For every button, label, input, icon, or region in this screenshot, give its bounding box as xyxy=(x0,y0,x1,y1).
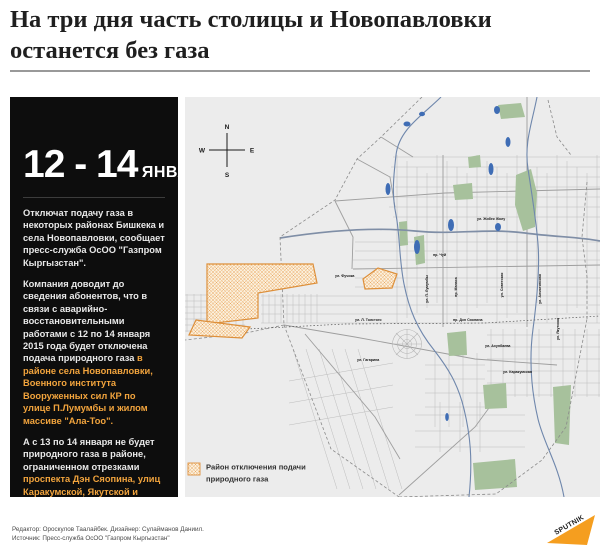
page-title-line1: На три дня часть столицы и Новопавловки xyxy=(10,5,592,36)
info-panel: 12 - 14 ЯНВАРЯ Отключат подачу газа в не… xyxy=(10,97,178,497)
paragraph-3-plain: А с 13 по 14 января не будет природного … xyxy=(23,437,155,472)
infographic-page: На три дня часть столицы и Новопавловки … xyxy=(0,0,600,553)
street-label: пр. Чуй xyxy=(433,253,446,257)
paragraph-3-highlight: проспекта Дэн Сяопина, улиц Каракумской,… xyxy=(23,474,160,497)
street-label: ул. Советская xyxy=(500,273,504,298)
date-range-month: ЯНВАРЯ xyxy=(142,164,178,181)
credits-line2: Источник: Пресс-служба ОсОО "Газпром Кыр… xyxy=(12,535,204,544)
date-divider xyxy=(23,197,165,198)
credits-line1: Редактор: Ороскулов Таалайбек. Дизайнер:… xyxy=(12,526,204,535)
street-label: ул. Ахунбаева xyxy=(485,344,511,348)
street-label: ул. Якутская xyxy=(556,318,560,340)
city-map-svg: пр. Чуй ул. Жибек Жолу ул. Л. Толстого п… xyxy=(185,97,600,497)
city-map: пр. Чуй ул. Жибек Жолу ул. Л. Толстого п… xyxy=(185,97,600,497)
paragraph-2: Компания доводит до сведения абонентов, … xyxy=(23,278,165,427)
paragraph-1: Отключат подачу газа в некоторых районах… xyxy=(23,207,165,269)
compass-north-label: N xyxy=(225,124,230,131)
street-label: ул. Л. Толстого xyxy=(355,318,382,322)
page-title-line2: останется без газа xyxy=(10,36,592,67)
legend-outage-swatch xyxy=(188,463,200,475)
street-label: ул. Жибек Жолу xyxy=(477,217,505,221)
compass-west-label: W xyxy=(199,148,206,155)
sputnik-logo: SPUTNIK xyxy=(543,509,599,551)
credits: Редактор: Ороскулов Таалайбек. Дизайнер:… xyxy=(12,526,204,543)
street-label: пр. Дэн Сяопина xyxy=(453,318,484,322)
page-title: На три дня часть столицы и Новопавловки … xyxy=(10,5,592,66)
compass-south-label: S xyxy=(225,172,230,179)
street-label: ул. Каракумская xyxy=(503,370,532,374)
compass-east-label: E xyxy=(250,148,255,155)
date-range-numbers: 12 - 14 xyxy=(23,143,137,186)
title-divider xyxy=(10,70,590,72)
street-label: ул. Фучика xyxy=(335,274,355,278)
paragraph-3: А с 13 по 14 января не будет природного … xyxy=(23,436,165,497)
street-label: ул. Гагарина xyxy=(357,358,380,362)
legend-label-line2: природного газа xyxy=(206,475,269,484)
paragraph-2-plain: Компания доводит до сведения абонентов, … xyxy=(23,279,150,363)
circular-district xyxy=(392,329,422,359)
street-label: ул. Алматинская xyxy=(538,274,542,304)
street-label: ул. П. Лумумбы xyxy=(425,275,429,303)
paragraph-2-highlight: в районе села Новопавловки, Военного инс… xyxy=(23,353,153,425)
street-label: пр. Манаса xyxy=(454,276,458,297)
legend-label-line1: Район отключения подачи xyxy=(206,463,306,472)
date-range: 12 - 14 ЯНВАРЯ xyxy=(23,143,165,187)
